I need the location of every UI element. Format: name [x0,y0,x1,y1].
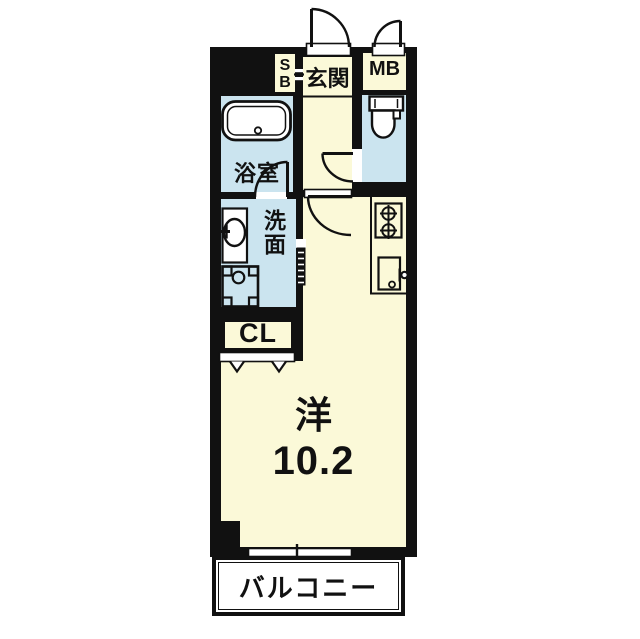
room-toilet [362,95,406,182]
shoe-box-label: SB [274,53,296,95]
folding-door-gap [296,239,306,248]
entrance-label: 玄関 [303,61,352,93]
balcony-label: バルコニー [218,562,399,610]
meter-box-label: MB [363,58,406,81]
western-room-label: 洋 10.2 [240,394,387,484]
pillar [221,521,240,547]
bathroom-doorway-gap [256,192,287,199]
floorplan: バルコニー SB 玄関 MB 浴室 洗面 CL 洋 10.2 [0,0,640,639]
room-main-upper [303,197,406,362]
closet-label: CL [225,318,291,349]
western-room-area: 10.2 [240,438,387,484]
entrance-door-arc [312,9,350,47]
toilet-doorway-gap [352,149,362,182]
meter-box-door-arc [375,21,401,47]
western-room-type: 洋 [240,394,387,438]
bathroom-label: 浴室 [221,156,293,188]
floorplan-page: { "floorplan": { "rooms": { "entrance": … [0,0,640,639]
balcony: バルコニー [212,556,405,616]
washroom-label: 洗面 [257,209,289,273]
